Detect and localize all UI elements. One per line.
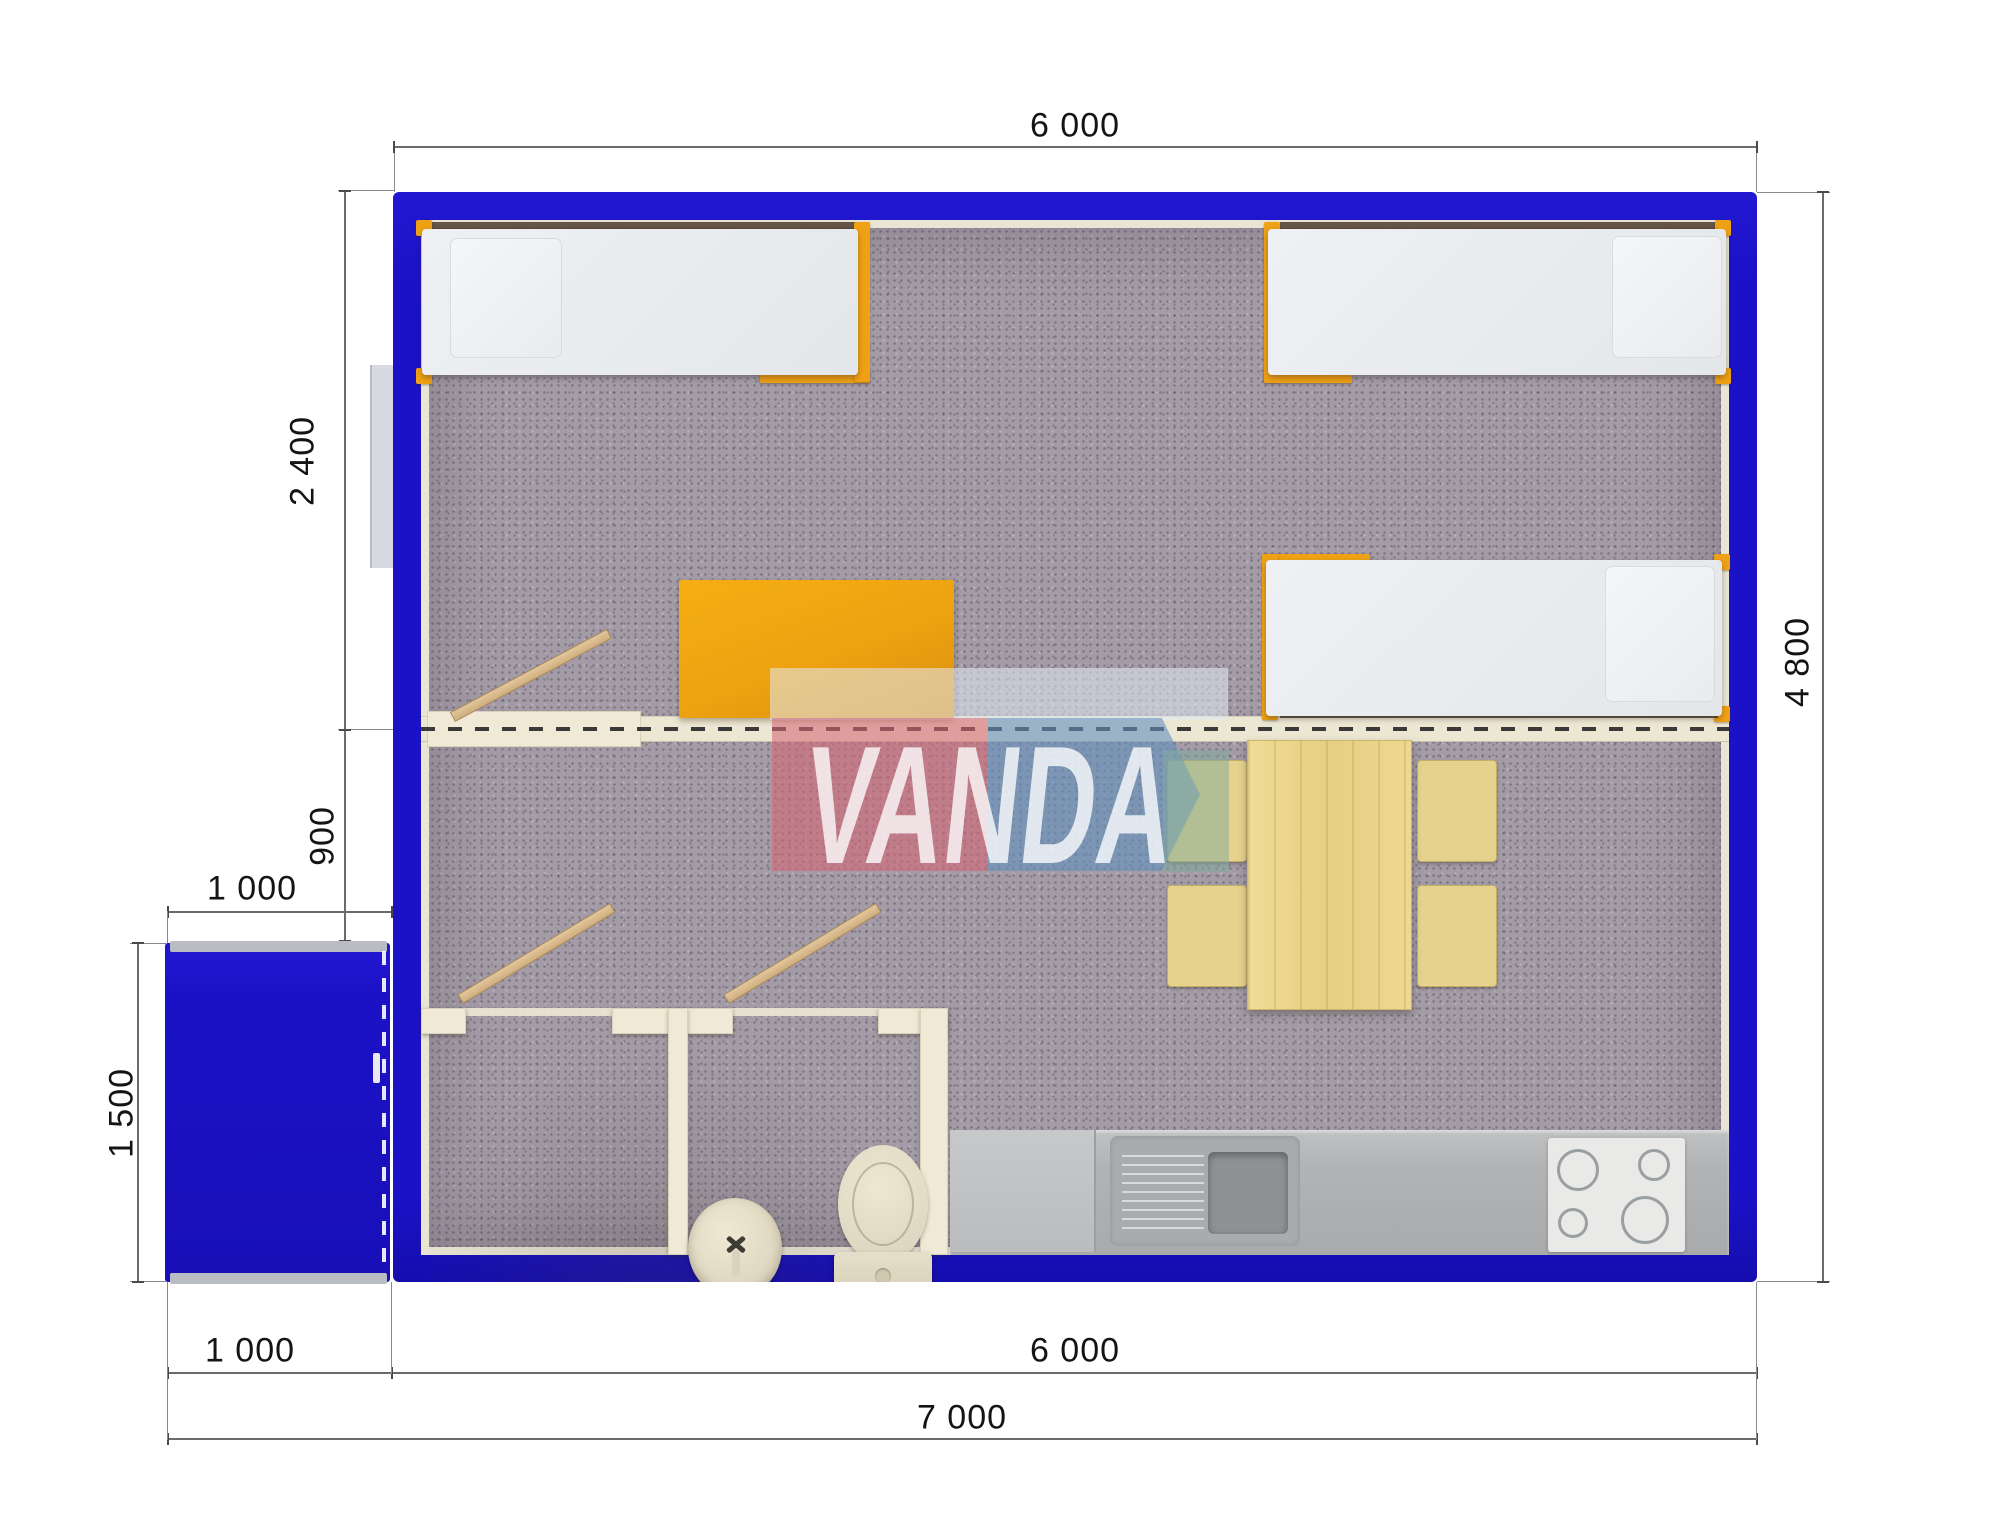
bed3-pillow <box>1605 566 1715 702</box>
bed2-pillow <box>1612 236 1722 358</box>
dim-label-top-width: 6 000 <box>1030 107 1120 146</box>
stove-burner-top-left <box>1557 1149 1599 1191</box>
chair-right-bottom <box>1417 885 1497 987</box>
kitchen-cabinet-left <box>950 1130 1096 1252</box>
tick <box>1817 191 1829 193</box>
dim-line-bottom-1 <box>168 1372 1757 1374</box>
hall-door-lintel <box>466 1008 612 1016</box>
porch-threshold-top <box>170 941 387 952</box>
dim-label-right-height: 4 800 <box>1779 617 1818 707</box>
kitchen-sink-basin <box>1208 1152 1288 1234</box>
bed1-pillow <box>450 238 562 358</box>
dim-label-porch-depth: 1 500 <box>103 1068 142 1158</box>
bathroom-door-lintel <box>733 1008 878 1016</box>
chair-right-top <box>1417 760 1497 862</box>
dim-line-left <box>344 190 346 942</box>
dim-label-bottom-porch: 1 000 <box>205 1332 295 1371</box>
porch-door-handle <box>373 1053 380 1083</box>
tick <box>339 729 351 731</box>
chair-left-bottom <box>1167 885 1247 987</box>
partition-h-left <box>421 1008 466 1034</box>
toilet-lid-line <box>852 1162 914 1246</box>
ext-porch-left <box>167 911 168 943</box>
stove-burner-top-right <box>1638 1149 1670 1181</box>
entry-porch <box>165 943 390 1282</box>
partition-v-hall-bath <box>668 1008 688 1255</box>
dim-label-porch-width-top: 1 000 <box>207 870 297 909</box>
porch-threshold-bottom <box>170 1273 387 1284</box>
tick <box>132 942 144 944</box>
basin-tap-stem <box>732 1250 740 1276</box>
floor-plan-canvas: 6 000 2 400 900 1 000 1 500 4 800 1 000 … <box>0 0 2000 1537</box>
dim-label-bottom-main: 6 000 <box>1030 1332 1120 1371</box>
stove-burner-bottom-right <box>1621 1196 1669 1244</box>
dim-label-hall-offset: 900 <box>304 806 343 866</box>
ext-bottom-right <box>1756 1282 1757 1440</box>
dim-label-bedroom-depth: 2 400 <box>284 416 323 506</box>
dim-line-porch-top-width <box>168 911 392 913</box>
dim-label-bottom-total: 7 000 <box>917 1399 1007 1438</box>
tick <box>339 190 351 192</box>
watermark-text: VANDA <box>797 721 1183 889</box>
porch-door-joint <box>382 951 386 1273</box>
watermark-text-wrap: VANDA <box>760 735 1220 875</box>
tick <box>1756 141 1758 153</box>
ext-bottom-left <box>167 1282 168 1440</box>
dining-table <box>1247 740 1412 1010</box>
dim-line-bottom-2 <box>168 1438 1757 1440</box>
toilet-flush-button <box>875 1268 891 1282</box>
tick <box>1817 1281 1829 1283</box>
dim-line-right <box>1822 192 1824 1282</box>
ext-bottom-mid <box>391 1282 392 1374</box>
stove-burner-bottom-left <box>1558 1208 1588 1238</box>
kitchen-drainboard <box>1122 1155 1204 1236</box>
dim-line-top <box>394 146 1757 148</box>
tick <box>132 1281 144 1283</box>
left-wall-window <box>370 365 393 568</box>
tick <box>393 141 395 153</box>
